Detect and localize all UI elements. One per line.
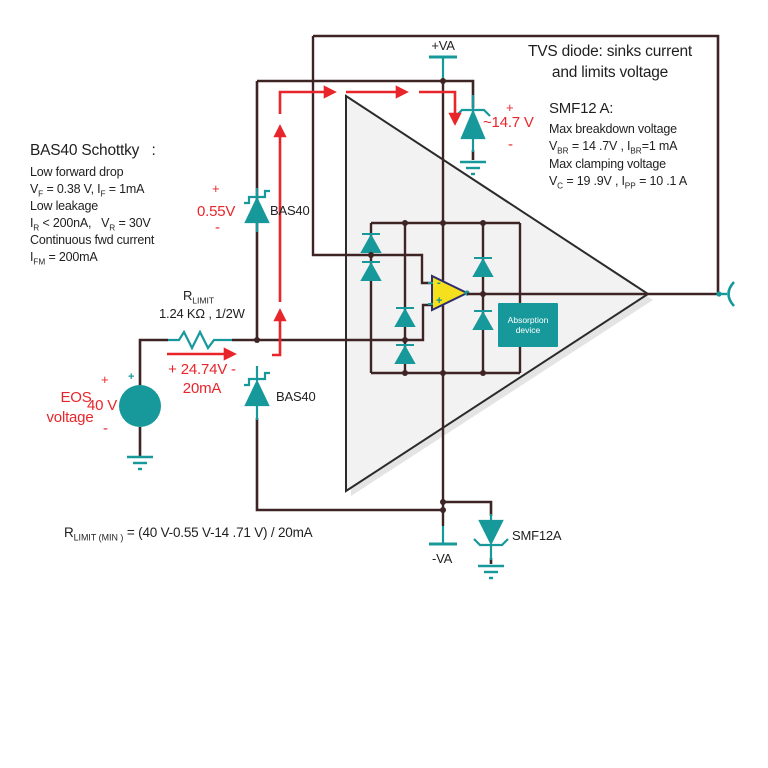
resistor-icon — [168, 332, 232, 348]
tvs-clamp-value: ~14.7 V — [483, 114, 534, 131]
eos-source-plus-mark: + — [128, 371, 134, 383]
tvs-clamp-plus: + — [506, 100, 513, 115]
rlimit-value: 1.24 KΩ , 1/2W — [159, 306, 245, 321]
minus-va-label: -VA — [422, 551, 462, 566]
absorption-device-box: Absorption device — [498, 303, 558, 347]
bas40-note-line: Continuous fwd current — [30, 232, 154, 249]
bas40-top-diode — [244, 188, 270, 232]
tvs-note-line: and limits voltage — [500, 64, 720, 82]
bas40-note-line: VF = 0.38 V, IF = 1mA — [30, 181, 144, 198]
rlimit-label: RLIMIT — [183, 288, 214, 303]
smf12a-label: SMF12A — [512, 528, 561, 543]
bas40-drop-value: 0.55V — [197, 203, 235, 220]
bas40-drop-plus: + — [212, 181, 219, 196]
schematic-canvas — [0, 0, 768, 768]
absorption-label-2: device — [516, 325, 541, 336]
output-terminal-icon — [729, 282, 735, 306]
tvs-clamp-minus: - — [508, 136, 513, 153]
bas40-note-title: BAS40 Schottky : — [30, 142, 156, 160]
bas40-top-label: BAS40 — [270, 203, 309, 218]
eos-value: 40 V — [87, 397, 117, 414]
eos-protection-schematic: Absorption device BAS40 Schottky : Low f… — [0, 0, 768, 768]
bas40-drop-minus: - — [215, 219, 220, 236]
tvs-note-line: TVS diode: sinks current — [500, 43, 720, 61]
absorption-label-1: Absorption — [508, 315, 549, 326]
bas40-note-line: IFM = 200mA — [30, 249, 97, 266]
smf12a-diode — [474, 514, 508, 560]
bas40-note-line: Low forward drop — [30, 164, 123, 181]
smf12-note-title: SMF12 A: — [549, 100, 613, 117]
smf12-note-line: VC = 19 .9V , IPP = 10 .1 A — [549, 173, 687, 190]
plus-va-label: +VA — [425, 38, 461, 53]
eos-source-icon — [119, 385, 161, 427]
rlimit-drop-current: 20mA — [157, 380, 247, 397]
bas40-note-line: IR < 200nA, VR = 30V — [30, 215, 151, 232]
eos-minus: - — [103, 420, 108, 437]
smf12-note-line: VBR = 14 .7V , IBR=1 mA — [549, 138, 677, 155]
eos-plus: + — [101, 372, 108, 387]
smf12-note-line: Max clamping voltage — [549, 156, 666, 173]
bas40-note-line: Low leakage — [30, 198, 98, 215]
rlimit-drop-value: + 24.74V - — [157, 361, 247, 378]
bas40-bottom-diode — [244, 366, 270, 420]
smf12-note-line: Max breakdown voltage — [549, 121, 677, 138]
rlimit-formula: RLIMIT (MIN ) = (40 V-0.55 V-14 .71 V) /… — [64, 525, 312, 540]
opamp-minus-sign: - — [437, 277, 441, 289]
bas40-bottom-label: BAS40 — [276, 389, 315, 404]
opamp-plus-sign: + — [436, 295, 442, 307]
